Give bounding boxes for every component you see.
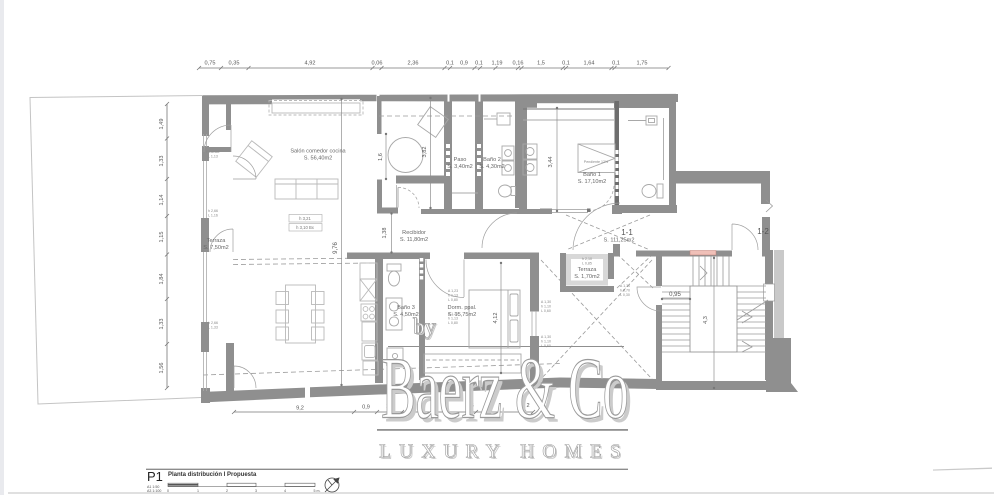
svg-text:1,84: 1,84 [159,274,165,285]
svg-text:Salón comedor cocina: Salón comedor cocina [290,149,346,155]
svg-text:S. 4,30m2: S. 4,30m2 [479,164,505,170]
svg-text:1,6: 1,6 [378,153,384,161]
svg-text:L 0,85: L 0,85 [582,262,592,266]
svg-text:4,92: 4,92 [305,61,316,67]
svg-text:0,1: 0,1 [475,61,483,67]
svg-text:S. 3,40m2: S. 3,40m2 [447,164,473,170]
svg-text:1,5: 1,5 [537,61,545,67]
svg-text:A 1,30: A 1,30 [541,335,551,339]
svg-text:h 2,10: h 2,10 [582,257,592,261]
svg-text:0,16: 0,16 [513,61,524,67]
svg-text:S. 17,10m2: S. 17,10m2 [578,179,607,185]
svg-text:L 1,13: L 1,13 [208,155,218,159]
svg-text:Baño 1: Baño 1 [583,172,601,178]
svg-text:h 1,10: h 1,10 [541,305,551,309]
svg-text:1,75: 1,75 [637,61,648,67]
svg-text:0,1: 0,1 [446,61,454,67]
svg-text:h 2,66: h 2,66 [208,321,218,325]
svg-text:L 1,33: L 1,33 [208,326,218,330]
svg-text:S. 7,50m2: S. 7,50m2 [203,245,229,251]
svg-text:Baerz & Co: Baerz & Co [381,340,629,437]
svg-text:5 m.: 5 m. [314,489,321,493]
svg-text:0,75: 0,75 [205,61,216,67]
svg-text:1-1: 1-1 [621,228,633,237]
svg-text:Terraza: Terraza [578,267,598,273]
svg-text:1,38: 1,38 [382,228,388,239]
svg-text:0,35: 0,35 [229,61,240,67]
svg-text:L 0,80: L 0,80 [448,298,458,302]
svg-text:h 3,10 Bx: h 3,10 Bx [296,225,315,230]
svg-text:3: 3 [255,489,257,493]
svg-text:1,19: 1,19 [492,61,503,67]
svg-text:h 0,70: h 0,70 [620,289,630,293]
svg-text:4,3: 4,3 [703,316,709,324]
svg-text:Paso: Paso [454,157,467,163]
svg-text:0,1: 0,1 [562,61,570,67]
svg-text:1,33: 1,33 [159,156,165,167]
svg-text:Baño 3: Baño 3 [397,305,415,311]
svg-text:Planta distribución I Propue: Planta distribución I Propuesta [168,472,257,478]
svg-text:Recibidor: Recibidor [402,230,426,236]
svg-text:Dorm. ppal.: Dorm. ppal. [448,305,477,311]
svg-text:L 1,16: L 1,16 [208,214,218,218]
svg-text:0,9: 0,9 [362,405,370,411]
svg-text:4: 4 [284,489,286,493]
svg-text:1,64: 1,64 [584,61,595,67]
svg-text:0,95: 0,95 [669,292,681,298]
svg-text:Baño 2: Baño 2 [483,157,501,163]
svg-text:h 1,13: h 1,13 [448,294,458,298]
svg-text:3,44: 3,44 [548,157,554,168]
svg-text:L 0,30: L 0,30 [620,293,630,297]
svg-text:1,14: 1,14 [159,195,165,206]
svg-text:9,2: 9,2 [296,406,304,412]
svg-text:A 1,30: A 1,30 [541,300,551,304]
svg-text:LUXURY HOMES: LUXURY HOMES [379,442,629,463]
svg-text:A 1,23: A 1,23 [448,312,458,316]
svg-text:S. 111,25m2: S. 111,25m2 [604,238,635,244]
svg-text:1,15: 1,15 [159,232,165,243]
svg-text:S. 1,70m2: S. 1,70m2 [574,274,600,280]
svg-text:2,36: 2,36 [408,61,419,67]
svg-text:A 1,30: A 1,30 [620,284,630,288]
svg-text:1,33: 1,33 [159,319,165,330]
svg-text:1-2: 1-2 [757,227,769,236]
svg-text:h 2,66: h 2,66 [208,209,218,213]
svg-text:L 0,60: L 0,60 [541,309,551,313]
svg-text:Pendiente 12%: Pendiente 12% [584,160,609,164]
svg-text:0,1: 0,1 [612,61,620,67]
svg-text:S. 56,40m2: S. 56,40m2 [304,156,333,162]
svg-text:9,76: 9,76 [333,242,339,254]
svg-text:2: 2 [226,489,228,493]
svg-text:h 3,21: h 3,21 [299,216,311,221]
svg-text:P.Lavad.: P.Lavad. [206,150,220,154]
svg-text:S. 11,80m2: S. 11,80m2 [400,237,428,243]
svg-text:4,12: 4,12 [493,313,499,324]
svg-text:0: 0 [167,489,169,493]
svg-text:1,56: 1,56 [159,363,165,374]
svg-text:0,06: 0,06 [372,61,383,67]
svg-text:Terraza: Terraza [207,238,227,244]
svg-text:1: 1 [197,489,199,493]
svg-text:h 1,13: h 1,13 [448,317,458,321]
svg-text:1,49: 1,49 [159,119,165,130]
svg-text:A3 1:100: A3 1:100 [147,489,161,493]
svg-text:by: by [413,314,437,339]
svg-text:0,9: 0,9 [460,61,468,67]
svg-text:3,82: 3,82 [422,147,428,158]
svg-text:A 1,23: A 1,23 [448,289,458,293]
svg-text:P1: P1 [147,469,163,484]
svg-text:L 0,80: L 0,80 [448,321,458,325]
